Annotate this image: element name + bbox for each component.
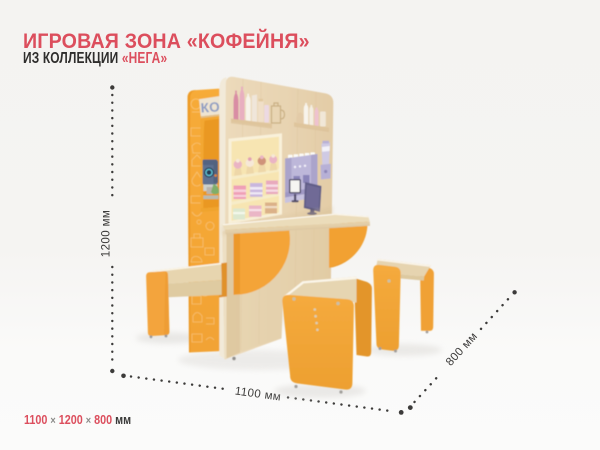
svg-text:КО: КО xyxy=(200,99,220,115)
svg-text:800 мм: 800 мм xyxy=(444,330,480,368)
svg-text:1200 мм: 1200 мм xyxy=(101,210,113,257)
svg-text:1100 мм: 1100 мм xyxy=(234,386,282,404)
